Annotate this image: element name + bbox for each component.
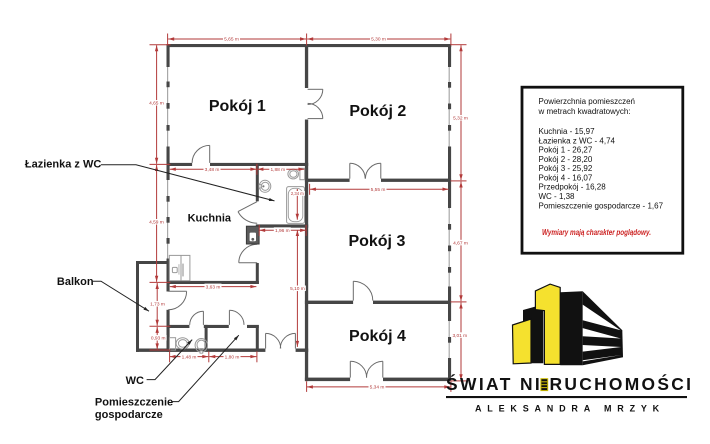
svg-text:ALEKSANDRA MRZYK: ALEKSANDRA MRZYK (475, 404, 665, 414)
svg-text:Kuchnia - 15,97: Kuchnia - 15,97 (539, 127, 596, 136)
svg-text:Pokój 1 - 26,27: Pokój 1 - 26,27 (539, 146, 593, 155)
svg-text:1,88 m: 1,88 m (270, 167, 285, 173)
svg-text:5,32 m: 5,32 m (453, 116, 468, 122)
svg-text:WC: WC (126, 375, 144, 387)
svg-text:5,55 m: 5,55 m (371, 187, 386, 193)
svg-text:2,34 m: 2,34 m (291, 191, 304, 196)
svg-text:Pokój 4: Pokój 4 (349, 328, 406, 345)
svg-text:Kuchnia: Kuchnia (188, 213, 232, 225)
svg-text:4,65 m: 4,65 m (149, 101, 164, 107)
svg-text:5,10 m: 5,10 m (290, 286, 305, 292)
svg-text:Balkon: Balkon (57, 276, 94, 288)
svg-text:ŚWIAT NI: ŚWIAT NI (446, 374, 542, 394)
svg-text:Pokój 3 - 25,92: Pokój 3 - 25,92 (539, 164, 593, 173)
svg-text:1,96 m: 1,96 m (275, 228, 290, 234)
svg-text:Łazienka z WC: Łazienka z WC (25, 159, 101, 171)
svg-text:3,48 m: 3,48 m (205, 167, 220, 173)
svg-text:5,65 m: 5,65 m (224, 37, 239, 43)
svg-text:1,48 m: 1,48 m (182, 354, 197, 360)
svg-text:1,73 m: 1,73 m (150, 302, 165, 308)
svg-text:Pokój 3: Pokój 3 (348, 233, 405, 250)
svg-text:3,63 m: 3,63 m (206, 284, 221, 290)
svg-text:Pomieszczenie: Pomieszczenie (95, 397, 173, 409)
svg-text:5,34 m: 5,34 m (370, 385, 385, 391)
svg-text:Pokój 1: Pokój 1 (209, 98, 266, 115)
svg-text:w metrach kwadratowych:: w metrach kwadratowych: (538, 107, 631, 116)
svg-text:Pokój 2 - 28,20: Pokój 2 - 28,20 (539, 155, 593, 164)
svg-text:4,59 m: 4,59 m (149, 220, 164, 226)
svg-text:3,01 m: 3,01 m (452, 333, 467, 339)
svg-text:5,30 m: 5,30 m (371, 37, 386, 43)
svg-text:1,80 m: 1,80 m (225, 354, 240, 360)
svg-text:Pokój 2: Pokój 2 (349, 103, 406, 120)
svg-text:Pomieszczenie gospodarcze - 1,: Pomieszczenie gospodarcze - 1,67 (539, 201, 664, 210)
svg-text:gospodarcze: gospodarcze (95, 409, 163, 421)
svg-text:Powierzchnia pomieszczeń: Powierzchnia pomieszczeń (539, 97, 636, 106)
svg-text:Przedpokój - 16,28: Przedpokój - 16,28 (539, 183, 607, 192)
svg-text:Łazienka z WC - 4,74: Łazienka z WC - 4,74 (539, 136, 616, 145)
svg-text:Wymiary mają charakter poglądo: Wymiary mają charakter poglądowy. (542, 228, 651, 237)
svg-text:0,93 m: 0,93 m (151, 336, 166, 342)
svg-text:Pokój 4 - 16,07: Pokój 4 - 16,07 (539, 173, 593, 182)
svg-text:RUCHOMOŚCI: RUCHOMOŚCI (550, 374, 694, 394)
svg-text:4,67 m: 4,67 m (453, 241, 468, 247)
svg-text:WC - 1,38: WC - 1,38 (539, 192, 576, 201)
